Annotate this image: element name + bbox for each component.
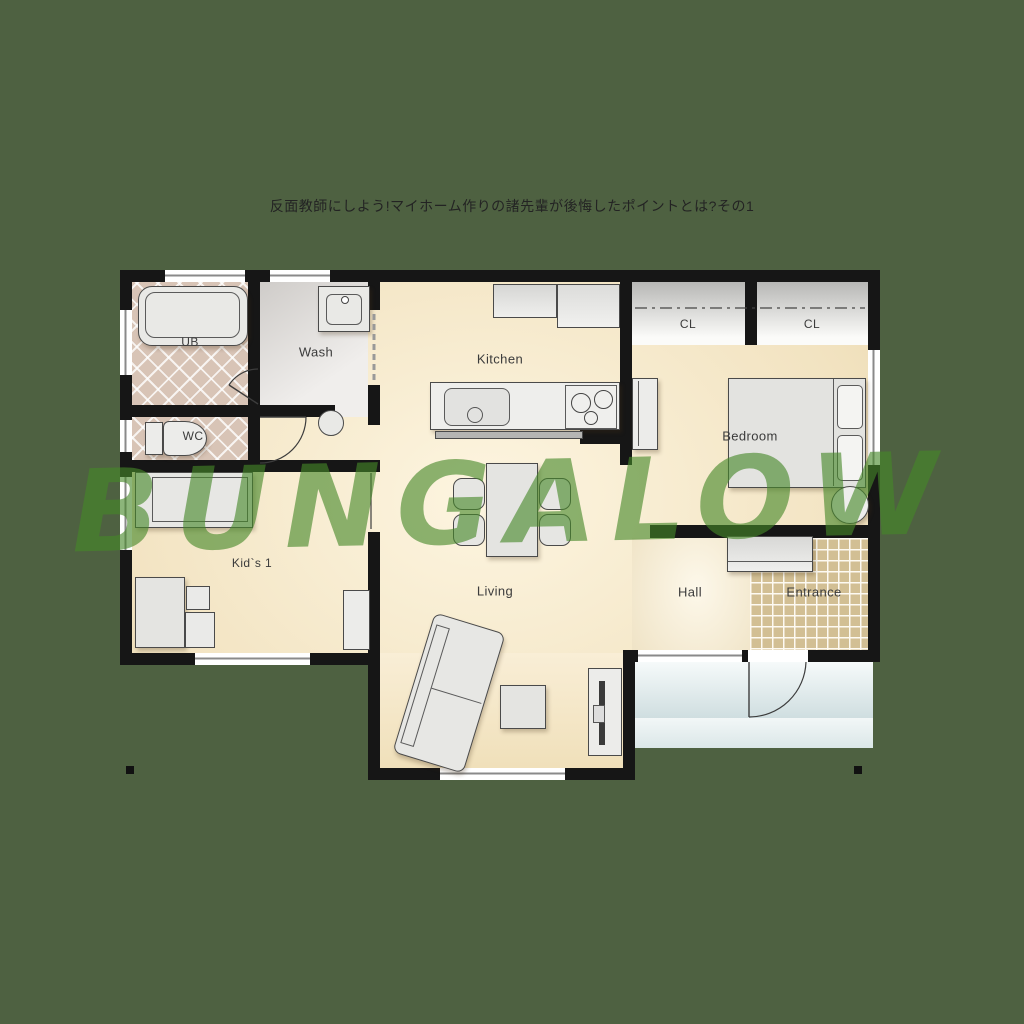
corridor-door-arc [260, 417, 306, 463]
bath-door-arc [229, 369, 258, 385]
room-label-living: Living [477, 584, 513, 599]
room-label-kids: Kid`s 1 [232, 556, 272, 570]
room-label-entrance: Entrance [786, 585, 841, 600]
site-marker [854, 766, 862, 774]
room-label-kitchen: Kitchen [477, 352, 523, 367]
page: { "header": { "title": "反面教師にしよう!マイホーム作り… [0, 0, 1024, 1024]
floor-plan: UB Wash Kitchen CL CL Bedroom WC Kid`s 1… [120, 270, 880, 780]
page-title: 反面教師にしよう!マイホーム作りの諸先輩が後悔したポイントとは?その1 [0, 196, 1024, 216]
front-door-arc [749, 662, 806, 717]
room-label-cl-2: CL [804, 317, 820, 331]
room-label-wc: WC [183, 429, 204, 443]
room-label-hall: Hall [678, 585, 702, 600]
room-label-cl-1: CL [680, 317, 696, 331]
room-label-ub: UB [181, 335, 198, 349]
bath-door-leaf [229, 385, 258, 404]
site-marker [126, 766, 134, 774]
room-label-wash: Wash [299, 345, 333, 360]
door-arcs-svg [120, 270, 880, 780]
room-label-bedroom: Bedroom [722, 429, 778, 444]
